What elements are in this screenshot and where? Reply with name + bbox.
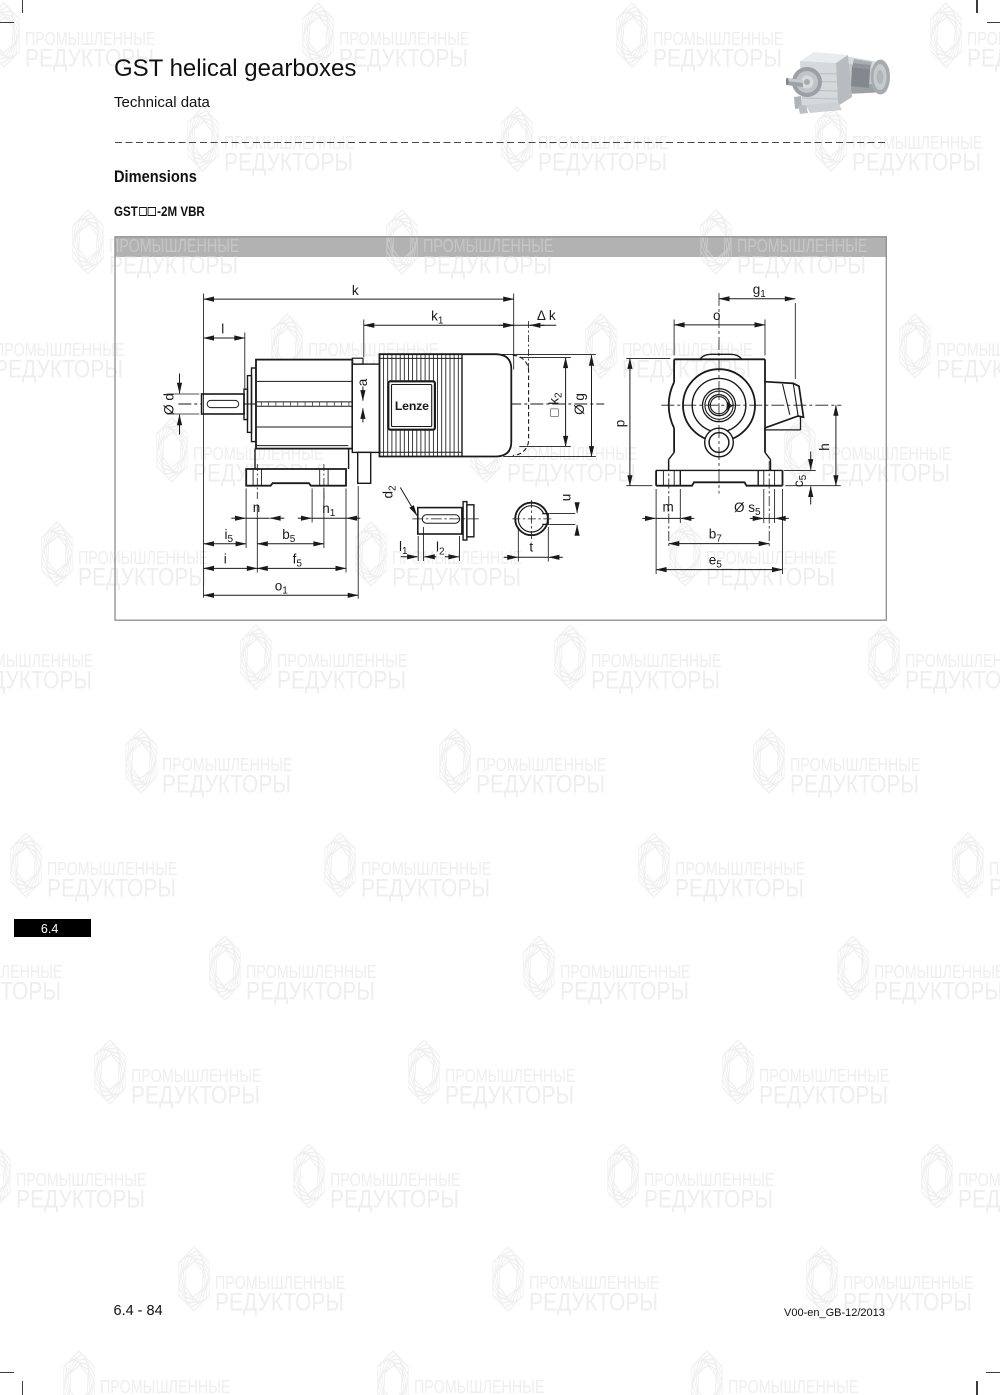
svg-text:l2: l2 <box>436 540 445 558</box>
svg-text:a: a <box>354 378 369 386</box>
svg-text:l: l <box>221 322 224 337</box>
svg-text:h: h <box>816 443 831 451</box>
svg-text:b7: b7 <box>708 527 722 545</box>
svg-text:c5: c5 <box>790 474 808 487</box>
svg-text:Δ k: Δ k <box>537 308 556 323</box>
svg-text:o: o <box>713 308 721 323</box>
svg-text:i: i <box>223 552 226 567</box>
svg-text:l1: l1 <box>399 539 408 557</box>
svg-text:n: n <box>252 500 260 515</box>
svg-text:p: p <box>612 420 627 428</box>
svg-text:Ø s5: Ø s5 <box>734 500 761 518</box>
svg-text:Ø g: Ø g <box>571 393 586 415</box>
svg-text:d2: d2 <box>380 485 398 499</box>
svg-text:t: t <box>529 540 533 555</box>
svg-text:b5: b5 <box>282 527 296 545</box>
svg-text:i5: i5 <box>224 527 233 545</box>
svg-text:Ø d: Ø d <box>161 393 176 415</box>
svg-text:o1: o1 <box>274 579 288 597</box>
svg-text:u: u <box>558 494 573 502</box>
svg-text:f5: f5 <box>292 552 302 570</box>
svg-text:g1: g1 <box>752 282 766 300</box>
svg-text:k1: k1 <box>431 309 444 327</box>
svg-text:m: m <box>662 500 673 515</box>
svg-text:e5: e5 <box>708 553 722 571</box>
svg-text:Lenze: Lenze <box>395 399 429 413</box>
svg-text:k: k <box>352 283 359 298</box>
